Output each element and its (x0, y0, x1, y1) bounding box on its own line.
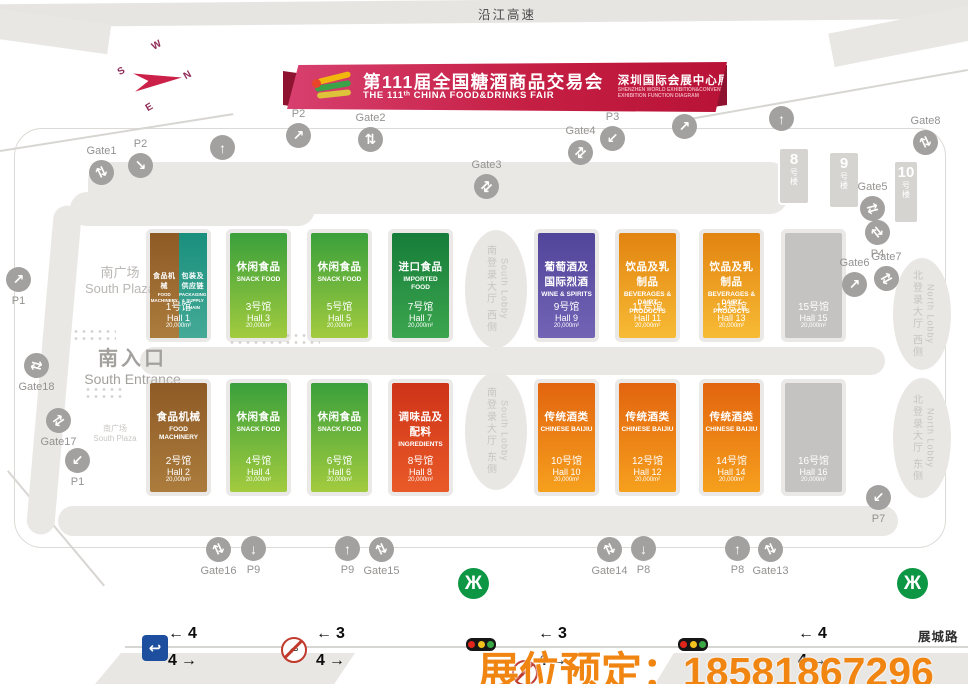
hall-number-cn: 9号馆 (538, 298, 595, 313)
hall-category: 休闲食品SNACK FOOD (313, 259, 366, 284)
gate-marker-gate5: ⇄Gate5 (860, 196, 885, 221)
marker-arrow-icon: ↗ (6, 267, 31, 292)
hall-number-en: Hall 10 (538, 467, 595, 477)
marker-label: Gate14 (591, 565, 627, 577)
banner-subtitles: 深圳国际会展中心展区功能图 SHENZHEN WORLD EXHIBITION&… (618, 75, 781, 100)
hall-number-cn: 5号馆 (311, 298, 368, 313)
no-u-turn-sign-icon: ↩ (281, 637, 307, 663)
hall-area: 20,000m² (311, 323, 368, 329)
south-plaza-small-en: South Plaza (80, 434, 150, 444)
hall-area: 20,000m² (538, 477, 595, 483)
building-block: 9号楼 (828, 151, 860, 209)
marker-arrow-icon: ⇅ (358, 127, 383, 152)
marker-label: P1 (12, 295, 25, 307)
marker-label: Gate2 (356, 112, 386, 124)
hall-hall-4: 休闲食品SNACK FOOD4号馆Hall 420,000m² (230, 383, 287, 492)
hall-category: 休闲食品SNACK FOOD (232, 259, 285, 284)
compass-w: W (150, 38, 164, 52)
gate-marker-gate13: ⇅Gate13 (758, 537, 783, 562)
gate-marker-gate1: ⇅Gate1 (89, 160, 114, 185)
hall-number-en: Hall 12 (619, 467, 676, 477)
hall-hall-6: 休闲食品SNACK FOOD6号馆Hall 620,000m² (311, 383, 368, 492)
marker-arrow-icon: ⇄ (469, 169, 504, 204)
marker-label: P3 (606, 111, 619, 123)
walkway-bottom (58, 506, 898, 536)
hall-number-en: Hall 7 (392, 313, 449, 323)
hall-number-block: 14号馆Hall 1420,000m² (703, 452, 760, 483)
hall-category-cn: 食品机械 (150, 271, 179, 291)
hall-category-cn: 休闲食品 (232, 409, 285, 424)
lobby-label-cn: 北登录大厅 东侧 (909, 394, 924, 483)
marker-label: Gate15 (363, 565, 399, 577)
south-entrance-cn: 南入口 (60, 342, 205, 371)
parking-marker-p4: ⇅P4 (865, 220, 890, 245)
hall-number-block: 10号馆Hall 1020,000m² (538, 452, 595, 483)
gate-marker-gate14: ⇅Gate14 (597, 537, 622, 562)
marker-label: P7 (872, 513, 885, 525)
marker-label: P2 (292, 108, 305, 120)
marker-arrow-icon: ⇅ (85, 156, 118, 189)
lane-row-west: ←3 (316, 626, 386, 642)
expressway-label: 沿江高速 (478, 4, 536, 23)
hall-category-en: SNACK FOOD (232, 426, 285, 434)
lane-count-group: ←44→ (168, 626, 238, 669)
marker-label: Gate1 (87, 145, 117, 157)
lane-row-east: 4→ (168, 653, 238, 669)
access-road-line (690, 69, 968, 119)
hall-hall-16: 16号馆Hall 1620,000m² (785, 383, 842, 492)
direction-marker: ↑ (769, 106, 794, 131)
hall-number-cn: 6号馆 (311, 452, 368, 467)
hall-area: 20,000m² (703, 323, 760, 329)
hall-category: 传统酒类CHINESE BAIJIU (621, 409, 674, 434)
compass-needle (133, 66, 183, 95)
lobby-label-cn: 北登录大厅 西侧 (909, 270, 924, 359)
hall-number-en: Hall 5 (311, 313, 368, 323)
lobby-area: 南登录大厅 东侧South Lobby (465, 372, 527, 490)
hall-area: 20,000m² (785, 477, 842, 483)
tree-grid (84, 386, 124, 400)
lobby-label-en: North Lobby (926, 408, 936, 468)
south-plaza-small-cn: 南广场 (80, 424, 150, 434)
hall-number-cn: 14号馆 (703, 452, 760, 467)
hall-area: 20,000m² (619, 323, 676, 329)
hall-category-cn: 包装及供应链 (179, 271, 208, 291)
lobby-area: 南登录大厅 西侧South Lobby (465, 230, 527, 348)
marker-label: P9 (247, 564, 260, 576)
hall-number-cn: 12号馆 (619, 452, 676, 467)
direction-marker: ↑ (210, 135, 235, 160)
hall-number-en: Hall 15 (785, 313, 842, 323)
gate-marker-gate16: ⇅Gate16 (206, 537, 231, 562)
hall-area: 20,000m² (230, 477, 287, 483)
parking-marker-p2: ↘P2 (128, 153, 153, 178)
building-suffix: 号楼 (839, 172, 850, 190)
no-u-turn-glyph: ↩ (289, 644, 298, 657)
marker-label: P2 (134, 138, 147, 150)
marker-arrow-icon: ↑ (210, 135, 235, 160)
hall-number-cn: 15号馆 (785, 298, 842, 313)
hall-number-block: 2号馆Hall 220,000m² (150, 452, 207, 483)
gate-marker-gate3: ⇄Gate3 (474, 174, 499, 199)
marker-arrow-icon: ⇅ (909, 126, 942, 159)
hall-category-cn: 休闲食品 (232, 259, 285, 274)
hall-number-en: Hall 13 (703, 313, 760, 323)
marker-arrow-icon: ⇅ (754, 533, 787, 566)
marker-label: P8 (637, 564, 650, 576)
marker-arrow-icon: ⇅ (202, 533, 235, 566)
hall-number-en: Hall 4 (230, 467, 287, 477)
banner-subtitle-en2: EXHIBITION FUNCTION DIAGRAM (618, 94, 781, 100)
hall-number-block: 15号馆Hall 1520,000m² (785, 298, 842, 329)
hall-category-cn: 饮品及乳制品 (705, 259, 758, 289)
lobby-area: 北登录大厅 西侧North Lobby (893, 258, 951, 370)
u-turn-sign-icon: ↩ (142, 635, 168, 661)
arrow-right-icon: → (329, 653, 345, 669)
banner-subtitle-cn: 深圳国际会展中心展区功能图 (618, 75, 781, 88)
venue-map: 沿江高速 第111届全国糖酒商品交易会 THE 111ᵗʰ CHINA FOOD… (0, 0, 968, 684)
hall-area: 20,000m² (311, 477, 368, 483)
hall-category: 传统酒类CHINESE BAIJIU (705, 409, 758, 434)
marker-label: Gate16 (200, 565, 236, 577)
hall-number-cn: 11号馆 (619, 298, 676, 313)
gate-marker-gate6: ↗Gate6 (842, 272, 867, 297)
arrow-left-icon: ← (316, 626, 332, 642)
hall-number-cn: 13号馆 (703, 298, 760, 313)
marker-arrow-icon: ⇄ (21, 350, 52, 381)
hall-category-cn: 传统酒类 (621, 409, 674, 424)
hall-number-en: Hall 6 (311, 467, 368, 477)
hall-category-en: IMPORTED FOOD (394, 276, 447, 293)
u-turn-glyph: ↩ (149, 639, 162, 657)
hall-hall-8: 调味品及配料INGREDIENTS8号馆Hall 820,000m² (392, 383, 449, 492)
lane-count: 3 (336, 626, 345, 642)
hall-area: 20,000m² (392, 323, 449, 329)
marker-arrow-icon: ⇅ (593, 533, 626, 566)
hall-area: 20,000m² (150, 323, 207, 329)
hall-number-block: 16号馆Hall 1620,000m² (785, 452, 842, 483)
gate-marker-gate2: ⇅Gate2 (358, 127, 383, 152)
hall-hall-10: 传统酒类CHINESE BAIJIU10号馆Hall 1020,000m² (538, 383, 595, 492)
hall-category-cn: 休闲食品 (313, 409, 366, 424)
marker-arrow-icon: ↗ (672, 114, 697, 139)
hall-category-en: CHINESE BAIJIU (705, 426, 758, 434)
walkway-plaza-top (70, 192, 315, 226)
hall-category-en: FOOD MACHINERY (152, 426, 205, 443)
hall-hall-14: 传统酒类CHINESE BAIJIU14号馆Hall 1420,000m² (703, 383, 760, 492)
hall-number-en: Hall 1 (150, 313, 207, 323)
hall-hall-7: 进口食品IMPORTED FOOD7号馆Hall 720,000m² (392, 233, 449, 338)
parking-marker-p3: ↙P3 (600, 126, 625, 151)
marker-label: Gate18 (18, 381, 54, 393)
marker-label: Gate6 (840, 257, 870, 269)
parking-marker-p2: ↗P2 (286, 123, 311, 148)
hall-area: 20,000m² (785, 323, 842, 329)
hall-category-cn: 休闲食品 (313, 259, 366, 274)
lane-row-east: 4→ (316, 653, 386, 669)
marker-arrow-icon: ⇄ (563, 135, 598, 170)
building-suffix: 号楼 (789, 168, 800, 186)
hall-hall-5: 休闲食品SNACK FOOD5号馆Hall 520,000m² (311, 233, 368, 338)
hall-category: 葡萄酒及国际烈酒WINE & SPIRITS (540, 259, 593, 299)
hall-category-cn: 饮品及乳制品 (621, 259, 674, 289)
hall-number-block: 13号馆Hall 1320,000m² (703, 298, 760, 329)
gate-marker-gate8: ⇅Gate8 (913, 130, 938, 155)
marker-arrow-icon: ↗ (286, 123, 311, 148)
compass-s: S (116, 65, 127, 78)
marker-arrow-icon: ⇄ (41, 403, 76, 438)
hall-category-en: CHINESE BAIJIU (621, 426, 674, 434)
building-block: 8号楼 (778, 147, 810, 205)
marker-arrow-icon: ↙ (65, 448, 90, 473)
gate-marker-gate18: ⇄Gate18 (24, 353, 49, 378)
hall-number-en: Hall 16 (785, 467, 842, 477)
hall-number-block: 8号馆Hall 820,000m² (392, 452, 449, 483)
walkway-middle (140, 347, 885, 375)
marker-label: Gate8 (911, 115, 941, 127)
hall-hall-13: 饮品及乳制品BEVERAGES & DAIRT PRODUCTS13号馆Hall… (703, 233, 760, 338)
building-block: 10号楼 (893, 160, 919, 224)
hall-category-en: SNACK FOOD (313, 276, 366, 284)
building-suffix: 号楼 (901, 181, 912, 199)
marker-arrow-icon: ↙ (600, 126, 625, 151)
building-number: 10 (898, 165, 915, 180)
gate-marker-gate4: ⇄Gate4 (568, 140, 593, 165)
hall-area: 20,000m² (619, 477, 676, 483)
marker-arrow-icon: ↑ (335, 536, 360, 561)
marker-label: P9 (341, 564, 354, 576)
hall-number-block: 9号馆Hall 920,000m² (538, 298, 595, 329)
hall-number-block: 3号馆Hall 320,000m² (230, 298, 287, 329)
hall-hall-2: 食品机械FOOD MACHINERY2号馆Hall 220,000m² (150, 383, 207, 492)
compass-icon: W N E S (118, 40, 198, 120)
marker-label: Gate5 (858, 181, 888, 193)
parking-marker-p1: ↗P1 (6, 267, 31, 292)
metro-glyph: Ж (904, 573, 921, 595)
hall-hall-1: 食品机械FOOD MACHINERY包装及供应链PACKAGING & SUPP… (150, 233, 207, 338)
hall-category-cn: 调味品及配料 (394, 409, 447, 439)
parking-marker-p1: ↙P1 (65, 448, 90, 473)
hall-area: 20,000m² (392, 477, 449, 483)
marker-arrow-icon: ↘ (128, 153, 153, 178)
hall-category-en: SNACK FOOD (232, 276, 285, 284)
hall-number-en: Hall 14 (703, 467, 760, 477)
hall-category-cn: 传统酒类 (540, 409, 593, 424)
building-number: 9 (840, 156, 848, 171)
hall-category-cn: 传统酒类 (705, 409, 758, 424)
arrow-left-icon: ← (168, 626, 184, 642)
hall-number-en: Hall 9 (538, 313, 595, 323)
direction-marker: ↗ (672, 114, 697, 139)
banner-title-cn: 第111届全国糖酒商品交易会 (363, 73, 604, 91)
parking-marker-p8: ↑P8 (725, 536, 750, 561)
marker-label: Gate13 (752, 565, 788, 577)
banner-title-en: THE 111ᵗʰ CHINA FOOD&DRINKS FAIR (363, 91, 604, 101)
hall-number-block: 12号馆Hall 1220,000m² (619, 452, 676, 483)
gate-marker-gate15: ⇅Gate15 (369, 537, 394, 562)
parking-marker-p9: ↓P9 (241, 536, 266, 561)
compass-n: N (182, 69, 194, 82)
hall-number-en: Hall 3 (230, 313, 287, 323)
lobby-label-en: South Lobby (500, 258, 510, 320)
hall-category: 调味品及配料INGREDIENTS (394, 409, 447, 449)
hall-number-cn: 8号馆 (392, 452, 449, 467)
hall-category-en: INGREDIENTS (394, 441, 447, 449)
lane-count: 4 (188, 626, 197, 642)
marker-arrow-icon: ↙ (866, 485, 891, 510)
marker-arrow-icon: ⇄ (869, 261, 903, 295)
lobby-label-cn: 南登录大厅 东侧 (483, 387, 498, 476)
hall-number-cn: 2号馆 (150, 452, 207, 467)
hall-number-cn: 1号馆 (150, 298, 207, 313)
fair-logo-icon (315, 71, 355, 103)
hall-category: 休闲食品SNACK FOOD (232, 409, 285, 434)
hall-category-en: CHINESE BAIJIU (540, 426, 593, 434)
hall-hall-3: 休闲食品SNACK FOOD3号馆Hall 320,000m² (230, 233, 287, 338)
hall-number-block: 11号馆Hall 1120,000m² (619, 298, 676, 329)
hall-number-block: 1号馆Hall 120,000m² (150, 298, 207, 329)
hall-hall-11: 饮品及乳制品BEVERAGES & DAIRT PRODUCTS11号馆Hall… (619, 233, 676, 338)
marker-arrow-icon: ⇅ (365, 533, 398, 566)
banner-titles: 第111届全国糖酒商品交易会 THE 111ᵗʰ CHINA FOOD&DRIN… (363, 73, 604, 101)
hall-category: 进口食品IMPORTED FOOD (394, 259, 447, 293)
marker-arrow-icon: ⇅ (860, 215, 895, 250)
hall-number-block: 7号馆Hall 720,000m² (392, 298, 449, 329)
marker-arrow-icon: ↓ (631, 536, 656, 561)
hall-area: 20,000m² (703, 477, 760, 483)
hall-number-block: 6号馆Hall 620,000m² (311, 452, 368, 483)
marker-label: Gate7 (872, 251, 902, 263)
marker-label: P1 (71, 476, 84, 488)
gate-marker-gate7: ⇄Gate7 (874, 266, 899, 291)
hall-number-cn: 16号馆 (785, 452, 842, 467)
south-entrance-label: 南入口 South Entrance (60, 342, 205, 387)
lane-count: 4 (168, 653, 177, 669)
building-number: 8 (790, 152, 798, 167)
hall-number-en: Hall 2 (150, 467, 207, 477)
hall-category-cn: 食品机械 (152, 409, 205, 424)
hall-number-block: 4号馆Hall 420,000m² (230, 452, 287, 483)
hall-hall-9: 葡萄酒及国际烈酒WINE & SPIRITS9号馆Hall 920,000m² (538, 233, 595, 338)
hall-area: 20,000m² (230, 323, 287, 329)
lobby-label-en: South Lobby (500, 400, 510, 462)
hall-area: 20,000m² (538, 323, 595, 329)
marker-label: Gate17 (40, 436, 76, 448)
fair-banner: 第111届全国糖酒商品交易会 THE 111ᵗʰ CHINA FOOD&DRIN… (287, 62, 727, 112)
hall-hall-15: 15号馆Hall 1520,000m² (785, 233, 842, 338)
parking-marker-p7: ↙P7 (866, 485, 891, 510)
hall-number-en: Hall 8 (392, 467, 449, 477)
lane-count-group: ←34→ (316, 626, 386, 669)
hall-number-block: 5号馆Hall 520,000m² (311, 298, 368, 329)
lobby-label-en: North Lobby (926, 284, 936, 344)
lobby-label-cn: 南登录大厅 西侧 (483, 245, 498, 334)
metro-station-icon: Ж (897, 568, 928, 599)
hall-number-cn: 4号馆 (230, 452, 287, 467)
hall-category-cn: 进口食品 (394, 259, 447, 274)
marker-label: P8 (731, 564, 744, 576)
hall-category: 食品机械FOOD MACHINERY (152, 409, 205, 443)
hall-number-en: Hall 11 (619, 313, 676, 323)
parking-marker-p9: ↑P9 (335, 536, 360, 561)
lobby-area: 北登录大厅 东侧North Lobby (893, 378, 951, 498)
booking-phone-overlay: 展位预定：18581867296 (478, 638, 934, 684)
hall-category: 休闲食品SNACK FOOD (313, 409, 366, 434)
marker-label: Gate4 (566, 125, 596, 137)
hall-area: 20,000m² (150, 477, 207, 483)
compass-e: E (144, 101, 155, 114)
marker-arrow-icon: ↑ (769, 106, 794, 131)
hall-category: 传统酒类CHINESE BAIJIU (540, 409, 593, 434)
hall-category-cn: 葡萄酒及国际烈酒 (540, 259, 593, 289)
marker-arrow-icon: ↗ (842, 272, 867, 297)
arrow-right-icon: → (181, 653, 197, 669)
hall-category-en: SNACK FOOD (313, 426, 366, 434)
south-plaza-small-label: 南广场 South Plaza (80, 424, 150, 444)
hall-number-cn: 7号馆 (392, 298, 449, 313)
hall-number-cn: 10号馆 (538, 452, 595, 467)
metro-station-icon: Ж (458, 568, 489, 599)
metro-glyph: Ж (465, 573, 482, 595)
hall-number-cn: 3号馆 (230, 298, 287, 313)
gate-marker-gate17: ⇄Gate17 (46, 408, 71, 433)
lane-count: 4 (316, 653, 325, 669)
lane-row-west: ←4 (168, 626, 238, 642)
hall-hall-12: 传统酒类CHINESE BAIJIU12号馆Hall 1220,000m² (619, 383, 676, 492)
marker-arrow-icon: ↓ (241, 536, 266, 561)
marker-arrow-icon: ↑ (725, 536, 750, 561)
parking-marker-p8: ↓P8 (631, 536, 656, 561)
marker-label: Gate3 (472, 159, 502, 171)
